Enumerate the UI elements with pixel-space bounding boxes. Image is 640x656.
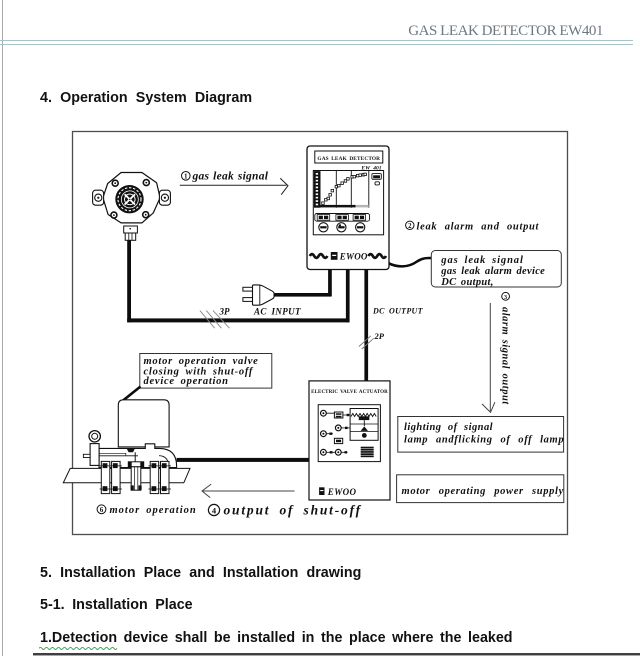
- svg-text:gas leak signal: gas leak signal: [440, 255, 523, 266]
- svg-text:4: 4: [212, 506, 217, 516]
- svg-text:device operation: device operation: [144, 376, 229, 387]
- svg-text:ELECTRIC VALVE ACTUATOR: ELECTRIC VALVE ACTUATOR: [311, 390, 388, 395]
- svg-text:DC output,: DC output,: [440, 277, 493, 288]
- svg-text:output of shut-off: output of shut-off: [224, 503, 362, 518]
- svg-text:DC OUTPUT: DC OUTPUT: [372, 306, 424, 315]
- svg-text:EWOO: EWOO: [327, 487, 357, 497]
- svg-text:1: 1: [184, 173, 188, 181]
- svg-text:EWOO: EWOO: [339, 252, 368, 262]
- svg-text:3P: 3P: [219, 306, 231, 316]
- svg-text:gas leak alarm device: gas leak alarm device: [440, 266, 545, 277]
- svg-text:lamp andflicking of off lamp: lamp andflicking of off lamp: [404, 434, 564, 445]
- svg-text:lighting of signal: lighting of signal: [404, 422, 493, 433]
- svg-text:3: 3: [504, 294, 507, 301]
- svg-text:gas leak signal: gas leak signal: [192, 171, 269, 183]
- svg-text:motor operation: motor operation: [110, 505, 197, 516]
- svg-text:2P: 2P: [374, 331, 385, 341]
- svg-text:GAS LEAK DETECTOR: GAS LEAK DETECTOR: [317, 156, 380, 162]
- svg-text:leak alarm and output: leak alarm and output: [417, 221, 540, 232]
- svg-text:2: 2: [408, 223, 412, 230]
- svg-text:AC INPUT: AC INPUT: [253, 306, 301, 316]
- svg-text:motor operating power supply: motor operating power supply: [402, 486, 564, 497]
- svg-text:6: 6: [100, 506, 104, 514]
- svg-text:alarm signal output: alarm signal output: [500, 307, 511, 405]
